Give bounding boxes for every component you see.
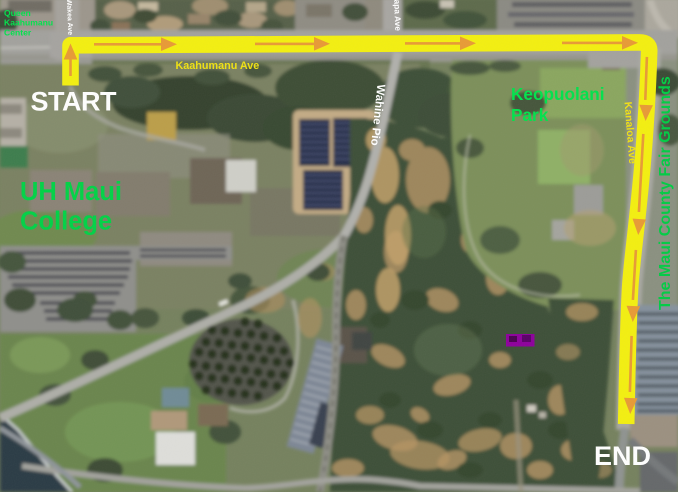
svg-text:END: END: [594, 441, 651, 471]
svg-text:START: START: [31, 87, 117, 117]
svg-text:Papa Ave: Papa Ave: [392, 0, 403, 31]
svg-text:Kaahumanu Ave: Kaahumanu Ave: [176, 60, 260, 72]
svg-text:Wakea Ave: Wakea Ave: [65, 0, 73, 35]
svg-text:College: College: [20, 207, 112, 235]
svg-text:UH Maui: UH Maui: [20, 178, 122, 206]
svg-text:Keopuolani: Keopuolani: [511, 84, 605, 104]
svg-text:Center: Center: [4, 27, 32, 37]
svg-text:Kaahumanu: Kaahumanu: [4, 18, 53, 28]
svg-text:Queen: Queen: [4, 8, 31, 18]
svg-text:The Maui County Fair Grounds: The Maui County Fair Grounds: [657, 76, 674, 310]
svg-text:Park: Park: [511, 105, 549, 125]
